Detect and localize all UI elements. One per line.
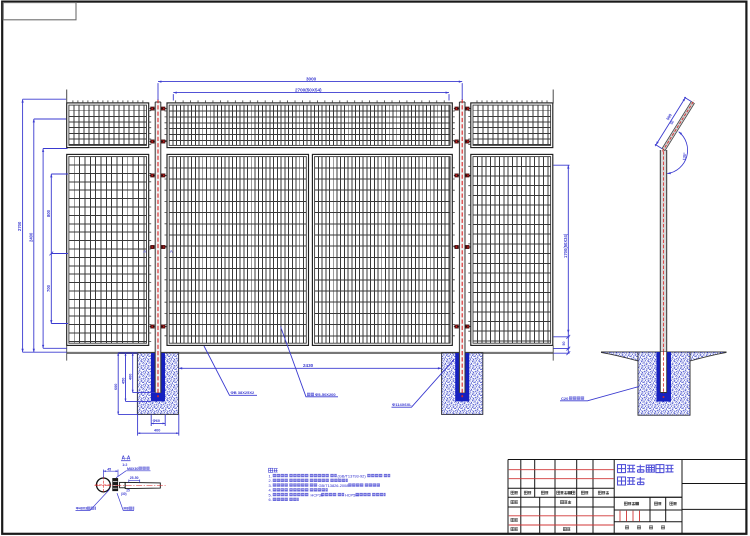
svg-text:2400: 2400: [28, 232, 33, 242]
svg-text:2700: 2700: [17, 221, 22, 231]
svg-text:(30): (30): [121, 492, 127, 496]
svg-text:50: 50: [562, 342, 566, 346]
svg-text:2430: 2430: [303, 363, 314, 368]
svg-text:M8X30: M8X30: [127, 467, 138, 471]
svg-text:Φ5-50X200: Φ5-50X200: [315, 392, 336, 397]
svg-text:600: 600: [114, 384, 118, 390]
svg-text:(GB/T13793-92): (GB/T13793-92): [338, 473, 367, 478]
svg-text:400: 400: [154, 428, 160, 432]
svg-text:25-50: 25-50: [130, 476, 139, 480]
svg-text:Φ60: Φ60: [153, 419, 160, 423]
svg-text:6.: 6.: [269, 497, 272, 502]
svg-text:25: 25: [126, 488, 130, 492]
svg-text:2700(50X54): 2700(50X54): [295, 88, 322, 93]
svg-text:C20: C20: [561, 396, 569, 401]
svg-text:800: 800: [46, 209, 51, 217]
svg-text:400: 400: [129, 374, 133, 380]
svg-text:3000: 3000: [306, 77, 317, 82]
svg-text:Φ48X3: Φ48X3: [76, 507, 87, 511]
svg-text:Φ114X6XL: Φ114X6XL: [392, 402, 412, 407]
svg-text:700: 700: [46, 284, 51, 292]
svg-text:450: 450: [121, 378, 125, 384]
svg-text:45: 45: [107, 467, 111, 471]
svg-text:M8: M8: [124, 507, 129, 511]
svg-text:ΦB 38X25X2: ΦB 38X25X2: [231, 390, 256, 395]
svg-text:1700(50X34): 1700(50X34): [563, 233, 568, 258]
svg-text:GB/T13826-2008: GB/T13826-2008: [319, 483, 349, 488]
